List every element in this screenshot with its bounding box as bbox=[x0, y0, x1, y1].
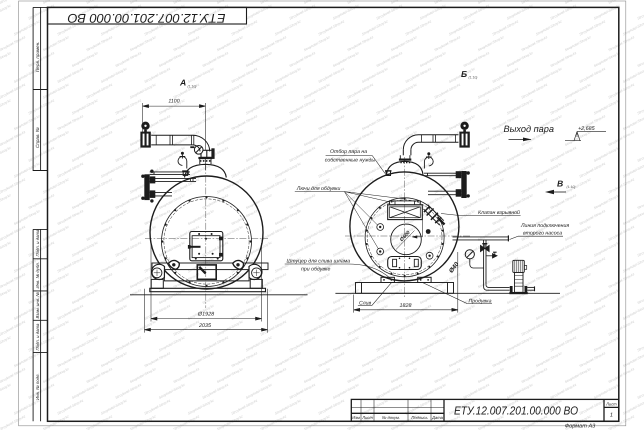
svg-text:(1:10): (1:10) bbox=[469, 76, 478, 80]
svg-text:Б: Б bbox=[461, 69, 467, 79]
svg-text:собственные нужды: собственные нужды bbox=[325, 158, 376, 164]
svg-text:1828: 1828 bbox=[400, 303, 412, 309]
svg-text:ЕТУ.12.007.201.00.000 ВО: ЕТУ.12.007.201.00.000 ВО bbox=[67, 11, 225, 25]
svg-text:2035: 2035 bbox=[198, 323, 212, 329]
svg-text:Ø1928: Ø1928 bbox=[197, 311, 214, 317]
svg-text:+2,685: +2,685 bbox=[578, 126, 596, 132]
svg-text:Линия подключения: Линия подключения bbox=[520, 223, 569, 229]
svg-text:(1:10): (1:10) bbox=[188, 85, 197, 89]
svg-text:Лист: Лист bbox=[605, 401, 617, 406]
svg-text:второго насоса: второго насоса bbox=[523, 231, 562, 237]
svg-text:А: А bbox=[179, 78, 186, 88]
svg-text:В: В bbox=[557, 179, 563, 189]
svg-text:Подп. и дата: Подп. и дата bbox=[35, 229, 40, 257]
svg-text:Лист: Лист bbox=[361, 415, 373, 420]
svg-text:Взам. инв. №: Взам. инв. № bbox=[35, 292, 40, 319]
svg-text:№ докум.: № докум. bbox=[382, 415, 400, 420]
svg-text:1: 1 bbox=[610, 413, 613, 419]
svg-text:Штуцер для слива шлама: Штуцер для слива шлама bbox=[287, 258, 351, 264]
svg-text:Перв. примен.: Перв. примен. bbox=[35, 41, 40, 72]
svg-text:Лючи для обдувки: Лючи для обдувки bbox=[296, 186, 341, 192]
svg-text:Справ. №: Справ. № bbox=[35, 127, 40, 148]
svg-text:(1:10): (1:10) bbox=[567, 185, 576, 189]
svg-text:Клапан взрывной: Клапан взрывной bbox=[478, 210, 520, 216]
svg-text:Подпись: Подпись bbox=[411, 415, 427, 420]
svg-text:Изм: Изм bbox=[352, 415, 360, 420]
svg-text:Выход пара: Выход пара bbox=[504, 124, 555, 134]
svg-text:Подп. и дата: Подп. и дата bbox=[35, 323, 40, 351]
svg-text:Инв. № дубл.: Инв. № дубл. bbox=[35, 262, 40, 288]
svg-text:при обдувке: при обдувке bbox=[301, 267, 330, 273]
svg-text:1100: 1100 bbox=[168, 99, 179, 105]
svg-text:ЕТУ.12.007.201.00.000 ВО: ЕТУ.12.007.201.00.000 ВО bbox=[454, 405, 578, 418]
svg-text:Отбор пара на: Отбор пара на bbox=[330, 149, 367, 155]
svg-text:Формат А3: Формат А3 bbox=[565, 423, 596, 429]
svg-text:Инв. № подл.: Инв. № подл. bbox=[35, 373, 40, 400]
svg-text:Дата: Дата bbox=[431, 415, 444, 420]
